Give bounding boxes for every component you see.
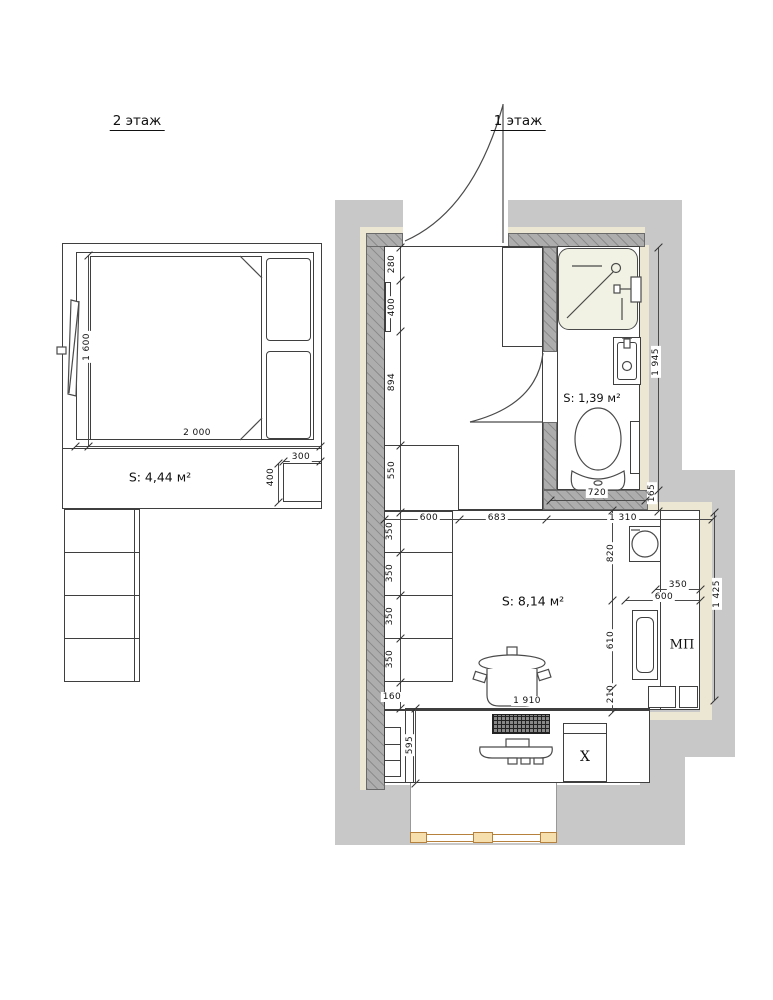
dimension-label: 2 000 (181, 428, 213, 438)
dimension-label: 350 (385, 605, 395, 627)
dimension-label: 1 425 (712, 578, 722, 610)
floor1-title: 1 этаж (491, 113, 546, 131)
monitor-icon (480, 739, 553, 764)
dimension-label: 350 (385, 648, 395, 670)
dimension-label: 1 945 (651, 346, 661, 378)
dimension-label: 595 (405, 734, 415, 756)
dimension-label: 1 600 (82, 331, 92, 363)
bathroom-area-label: S: 1,39 м² (563, 391, 620, 405)
dimension-label: 1 910 (511, 696, 543, 706)
dimension-label: 820 (606, 542, 616, 564)
dim-line (612, 510, 613, 712)
washing-machine-drum (632, 531, 658, 557)
main-area-label: S: 8,14 м² (502, 594, 564, 609)
door-swing-icon (405, 105, 503, 241)
dimension-label: 1 310 (607, 513, 639, 523)
dimension-label: 400 (387, 296, 397, 318)
dim-line (550, 500, 645, 501)
dim-line (658, 247, 659, 511)
dimension-label: 600 (653, 592, 675, 602)
dimension-label: 350 (385, 520, 395, 542)
dim-line (415, 708, 416, 783)
dimension-label: 160 (381, 692, 403, 702)
toilet-icon (575, 408, 621, 470)
floor2-title: 2 этаж (110, 113, 165, 131)
dimension-label: 720 (586, 488, 608, 498)
dim-line (75, 446, 322, 447)
dimension-label: 350 (385, 562, 395, 584)
dimension-label: 683 (486, 513, 508, 523)
dimension-label: 280 (387, 253, 397, 275)
floor-plan-canvas: X МП (0, 0, 773, 1000)
dimension-label: 350 (667, 580, 689, 590)
dimension-label: 610 (606, 629, 616, 651)
dimension-label: 400 (266, 466, 276, 488)
dimension-label: 894 (387, 371, 397, 393)
dimension-label: 600 (418, 513, 440, 523)
dim-line (278, 463, 279, 502)
bedroom-area-label: S: 4,44 м² (129, 470, 191, 485)
dimension-label: 550 (387, 459, 397, 481)
dimension-label: 300 (290, 452, 312, 462)
